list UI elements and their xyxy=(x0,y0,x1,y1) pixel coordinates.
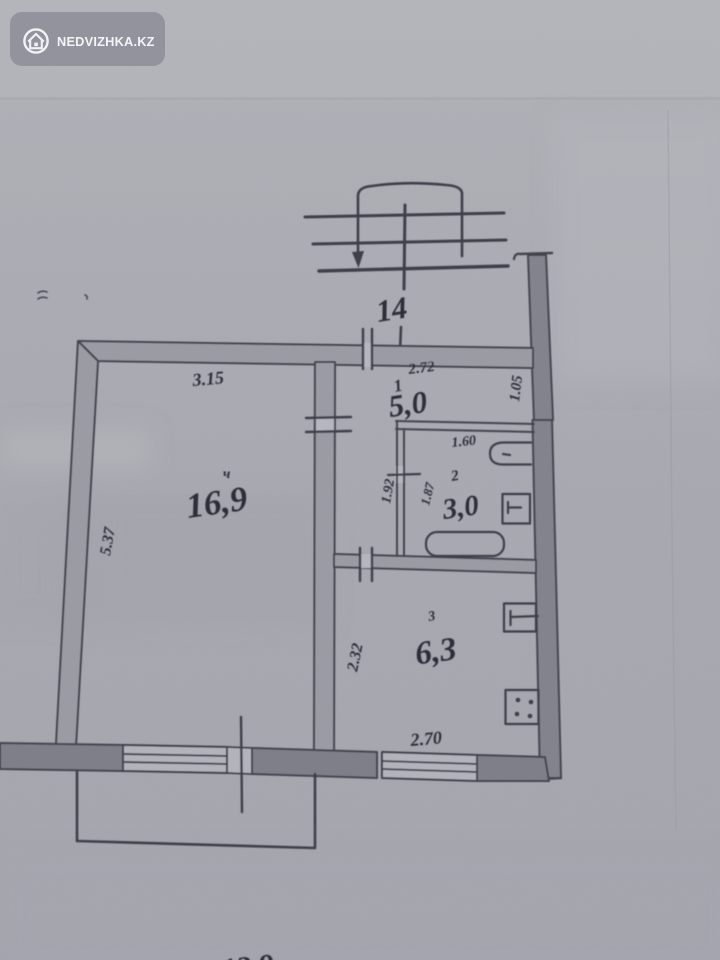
svg-text:3.15: 3.15 xyxy=(191,367,225,390)
svg-text:ч: ч xyxy=(223,467,230,482)
svg-text:NEDVIZHKA.KZ: NEDVIZHKA.KZ xyxy=(57,34,155,49)
svg-text:1.60: 1.60 xyxy=(451,433,477,450)
svg-text:14: 14 xyxy=(374,289,410,328)
svg-text:2.70: 2.70 xyxy=(409,727,443,750)
svg-text:6,3: 6,3 xyxy=(413,631,459,672)
svg-text:1.05: 1.05 xyxy=(507,374,526,403)
svg-text:2.72: 2.72 xyxy=(407,359,436,378)
svg-text:3,0: 3,0 xyxy=(440,489,481,526)
svg-text:5,0: 5,0 xyxy=(386,384,429,424)
